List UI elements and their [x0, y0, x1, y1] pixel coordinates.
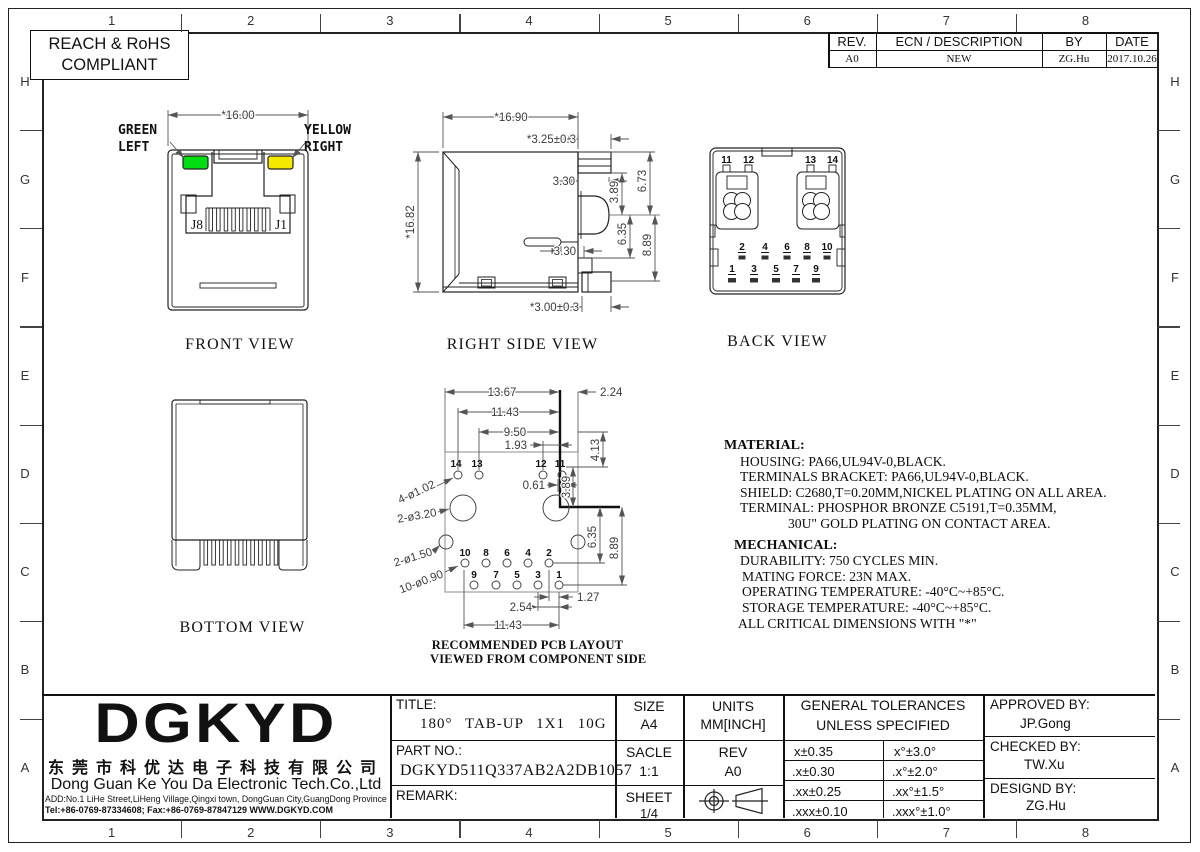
grid-tick [459, 820, 460, 838]
grid-col-label: 4 [459, 820, 598, 844]
svg-text:11: 11 [721, 155, 732, 166]
tol-angular-0: x°±3.0° [894, 744, 936, 759]
rev-value: A0 [828, 50, 876, 67]
svg-text:0.61: 0.61 [523, 480, 545, 492]
side-dim-330-bottom: 3.30 [554, 246, 576, 258]
grid-row-label: E [1158, 326, 1192, 424]
svg-text:8.89: 8.89 [609, 537, 621, 559]
grid-row-label: A [1158, 719, 1192, 817]
grid-tick [320, 820, 321, 838]
svg-text:11.43: 11.43 [491, 407, 519, 419]
bottom-view-linework [172, 400, 307, 570]
caption-pcb-line1: RECOMMENDED PCB LAYOUT [430, 638, 625, 653]
side-dim-tab-top: *3.25±0.3 [527, 134, 576, 146]
svg-text:7: 7 [793, 264, 799, 275]
rev-header: REV. [828, 32, 876, 50]
tolerance-header-2: UNLESS SPECIFIED [783, 717, 983, 733]
remark-label: REMARK: [396, 788, 458, 803]
company-address: ADD:No.1 LiHe Street,LiHeng Village,Qing… [45, 794, 387, 804]
caption-pcb-line2: VIEWED FROM COMPONENT SIDE [430, 652, 625, 667]
grid-tick [738, 14, 739, 32]
side-dim-height: *16.82 [405, 205, 417, 238]
grid-col-label: 7 [877, 820, 1016, 844]
grid-tick [20, 130, 42, 131]
checked-by-value: TW.Xu [1024, 757, 1065, 772]
grid-tick [1158, 621, 1180, 622]
grid-row-label: C [8, 523, 42, 621]
svg-text:4: 4 [525, 548, 531, 559]
grid-col-label: 5 [599, 820, 738, 844]
grid-tick [1016, 820, 1017, 838]
grid-tick [1016, 14, 1017, 32]
grid-col-label: 5 [599, 8, 738, 32]
grid-col-label: 3 [320, 820, 459, 844]
grid-tick [1158, 719, 1180, 720]
svg-text:1.93: 1.93 [505, 440, 527, 452]
note-line: ALL CRITICAL DIMENSIONS WITH "*" [738, 616, 1107, 632]
grid-col-label: 2 [181, 8, 320, 32]
units-label: UNITS [683, 698, 783, 714]
led-label-left: LEFT [118, 140, 149, 155]
note-line: DURABILITY: 750 CYCLES MIN. [740, 553, 1107, 569]
grid-col-label: 2 [181, 820, 320, 844]
note-line: STORAGE TEMPERATURE: -40°C~+85°C. [742, 600, 1107, 616]
grid-tick [599, 14, 600, 32]
front-dim-width: *16.00 [221, 110, 254, 122]
compliance-badge: REACH & RoHS COMPLIANT [30, 30, 189, 80]
grid-row-label: F [1158, 228, 1192, 326]
notes-block: MATERIAL: HOUSING: PA66,UL94V-0,BLACK. T… [724, 438, 1107, 631]
ecn-header: ECN / DESCRIPTION [876, 32, 1042, 50]
title-label: TITLE: [396, 697, 437, 712]
rev-value-cell: A0 [683, 763, 783, 779]
date-value: 2017.10.26 [1106, 50, 1158, 67]
side-dim-330-top: 3.30 [553, 176, 575, 188]
svg-text:3: 3 [751, 264, 757, 275]
svg-text:11.43: 11.43 [494, 620, 522, 632]
clover-cutout-left [724, 193, 751, 220]
svg-text:4.13: 4.13 [590, 439, 602, 461]
led-label-yellow: YELLOW [304, 123, 351, 138]
grid-col-label: 8 [1016, 8, 1155, 32]
projection-symbol-icon [688, 786, 780, 816]
svg-text:9: 9 [471, 570, 477, 581]
grid-col-label: 1 [42, 8, 181, 32]
grid-tick [20, 228, 42, 229]
tol-angular-1: .x°±2.0° [892, 764, 938, 779]
grid-row-label: C [1158, 523, 1192, 621]
note-line: TERMINAL: PHOSPHOR BRONZE C5191,T=0.35MM… [740, 500, 1107, 516]
svg-text:4: 4 [762, 242, 768, 253]
grid-row-label: H [8, 32, 42, 130]
company-name-en: Dong Guan Ke You Da Electronic Tech.Co.,… [42, 776, 390, 794]
approved-by-value: JP.Gong [1020, 716, 1071, 731]
company-logo: DGKYD [21, 694, 411, 750]
designed-by-label: DESIGND BY: [990, 781, 1076, 796]
svg-text:6: 6 [784, 242, 790, 253]
grid-tick [1158, 228, 1180, 229]
grid-tick [738, 820, 739, 838]
checked-by-label: CHECKED BY: [990, 739, 1081, 754]
svg-text:8: 8 [804, 242, 810, 253]
grid-col-label: 8 [1016, 820, 1155, 844]
svg-text:2: 2 [739, 242, 745, 253]
svg-text:13.67: 13.67 [488, 387, 517, 399]
svg-text:5: 5 [514, 570, 520, 581]
size-label: SIZE [615, 698, 683, 714]
svg-text:14: 14 [450, 459, 462, 470]
svg-text:13: 13 [471, 459, 483, 470]
part-no-label: PART NO.: [396, 743, 462, 758]
mechanical-title: MECHANICAL: [734, 538, 1107, 554]
company-contact: Tel:+86-0769-87334608; Fax:+86-0769-8784… [45, 805, 333, 815]
compliance-line2: COMPLIANT [61, 55, 157, 76]
note-line: SHIELD: C2680,T=0.20MM,NICKEL PLATING ON… [740, 485, 1107, 501]
scale-value: 1:1 [615, 763, 683, 779]
svg-text:4-ø1.02: 4-ø1.02 [396, 479, 437, 507]
grid-row-label: B [8, 621, 42, 719]
revision-table: REV. ECN / DESCRIPTION BY DATE A0 NEW ZG… [828, 32, 1158, 68]
grid-col-label: 4 [459, 8, 598, 32]
front-jack-label-j1: J1 [275, 217, 287, 232]
tol-linear-1: .x±0.30 [792, 764, 835, 779]
grid-row-label: F [8, 228, 42, 326]
side-dim-389: 3.89 [609, 181, 621, 203]
svg-text:12: 12 [743, 155, 755, 166]
grid-row-label: G [1158, 130, 1192, 228]
grid-tick [459, 14, 460, 32]
grid-tick [20, 326, 42, 327]
grid-row-label: B [1158, 621, 1192, 719]
grid-tick [1158, 425, 1180, 426]
grid-row-label: E [8, 326, 42, 424]
svg-text:14: 14 [827, 155, 839, 166]
sheet-value: 1/4 [615, 806, 683, 821]
grid-col-label: 6 [738, 820, 877, 844]
grid-tick [20, 523, 42, 524]
size-value: A4 [615, 716, 683, 732]
svg-text:8: 8 [483, 548, 489, 559]
svg-text:2-ø1.50: 2-ø1.50 [392, 546, 433, 569]
grid-tick [320, 14, 321, 32]
svg-text:7: 7 [493, 570, 499, 581]
units-value: MM[INCH] [683, 716, 783, 732]
grid-tick [599, 820, 600, 838]
date-header: DATE [1106, 32, 1158, 50]
grid-tick [181, 820, 182, 838]
ecn-value: NEW [876, 50, 1042, 67]
designed-by-value: ZG.Hu [1026, 798, 1066, 813]
svg-text:12: 12 [535, 459, 547, 470]
part-no-value: DGKYD511Q337AB2A2DB1057 [400, 762, 632, 780]
note-line: TERMINALS BRACKET: PA66,UL94V-0,BLACK. [740, 469, 1107, 485]
pcb-dim-labels: 13.67 2.24 11.43 9.50 1.93 4.13 3.89 0.6… [392, 387, 623, 632]
side-dim-635: 6.35 [617, 223, 629, 245]
svg-text:10: 10 [821, 242, 833, 253]
grid-row-label: D [8, 425, 42, 523]
led-label-green: GREEN [118, 123, 157, 138]
svg-text:3: 3 [535, 570, 541, 581]
svg-text:1: 1 [556, 570, 562, 581]
led-label-right: RIGHT [304, 140, 343, 155]
engineering-drawing-sheet: *16.00 J8 J1 [0, 0, 1200, 852]
front-view-linework [168, 110, 308, 310]
svg-text:10: 10 [459, 548, 471, 559]
rev-label: REV [683, 744, 783, 760]
approved-by-label: APPROVED BY: [990, 697, 1090, 712]
front-jack-label-j8: J8 [191, 217, 203, 232]
svg-text:2.24: 2.24 [600, 387, 623, 399]
svg-text:1.27: 1.27 [577, 592, 599, 604]
sheet-label: SHEET [615, 789, 683, 805]
svg-text:1: 1 [729, 264, 735, 275]
svg-text:2.54: 2.54 [510, 602, 533, 614]
caption-right-side-view: RIGHT SIDE VIEW [440, 336, 605, 354]
svg-text:2: 2 [546, 548, 552, 559]
svg-text:11: 11 [555, 459, 566, 470]
svg-text:10-ø0.90: 10-ø0.90 [398, 569, 445, 597]
svg-text:9: 9 [813, 264, 819, 275]
caption-back-view: BACK VIEW [700, 333, 855, 351]
grid-tick [877, 14, 878, 32]
note-line: OPERATING TEMPERATURE: -40°C~+85°C. [742, 584, 1107, 600]
by-header: BY [1042, 32, 1106, 50]
caption-front-view: FRONT VIEW [160, 336, 320, 354]
tol-angular-2: .xx°±1.5° [892, 784, 944, 799]
tolerance-header-1: GENERAL TOLERANCES [783, 697, 983, 713]
svg-text:5: 5 [773, 264, 779, 275]
company-name-cn: 东莞市科优达电子科技有限公司 [42, 754, 390, 778]
material-title: MATERIAL: [724, 438, 1107, 454]
clover-cutout-right [803, 193, 830, 220]
svg-text:2-ø3.20: 2-ø3.20 [396, 507, 437, 526]
grid-tick [20, 621, 42, 622]
side-dim-width: *16.90 [494, 112, 527, 124]
grid-row-label: G [8, 130, 42, 228]
grid-tick [20, 425, 42, 426]
svg-text:6: 6 [504, 548, 510, 559]
note-line: 30U" GOLD PLATING ON CONTACT AREA. [788, 516, 1107, 532]
led-yellow [268, 156, 293, 169]
svg-text:6.35: 6.35 [587, 526, 599, 548]
grid-row-label: A [8, 719, 42, 817]
by-value: ZG.Hu [1042, 50, 1106, 67]
svg-text:3.89: 3.89 [561, 476, 573, 498]
side-dim-tab-bottom: *3.00±0.3 [530, 302, 579, 314]
side-dim-889: 8.89 [642, 234, 654, 256]
led-green [183, 156, 208, 169]
grid-tick [20, 719, 42, 720]
tol-linear-2: .xx±0.25 [792, 784, 841, 799]
note-line: HOUSING: PA66,UL94V-0,BLACK. [740, 454, 1107, 470]
grid-tick [1158, 326, 1180, 327]
grid-tick [181, 14, 182, 32]
note-line: MATING FORCE: 23N MAX. [742, 569, 1107, 585]
scale-label: SACLE [615, 744, 683, 760]
title-block: DGKYD 东莞市科优达电子科技有限公司 Dong Guan Ke You Da… [42, 694, 1155, 818]
tol-angular-3: .xxx°±1.0° [892, 804, 951, 819]
side-dim-673: 6.73 [637, 170, 649, 192]
tol-linear-0: x±0.35 [794, 744, 833, 759]
compliance-line1: REACH & RoHS [49, 34, 171, 55]
caption-bottom-view: BOTTOM VIEW [160, 619, 325, 637]
grid-row-label: D [1158, 425, 1192, 523]
grid-row-label: H [1158, 32, 1192, 130]
grid-col-label: 6 [738, 8, 877, 32]
svg-text:9.50: 9.50 [504, 427, 526, 439]
grid-col-label: 1 [42, 820, 181, 844]
grid-tick [877, 820, 878, 838]
grid-tick [1158, 130, 1180, 131]
grid-tick [1158, 523, 1180, 524]
title-value: 180° TAB-UP 1X1 10G [420, 716, 607, 733]
grid-col-label: 3 [320, 8, 459, 32]
tol-linear-3: .xxx±0.10 [792, 804, 848, 819]
grid-col-label: 7 [877, 8, 1016, 32]
svg-text:13: 13 [805, 155, 817, 166]
